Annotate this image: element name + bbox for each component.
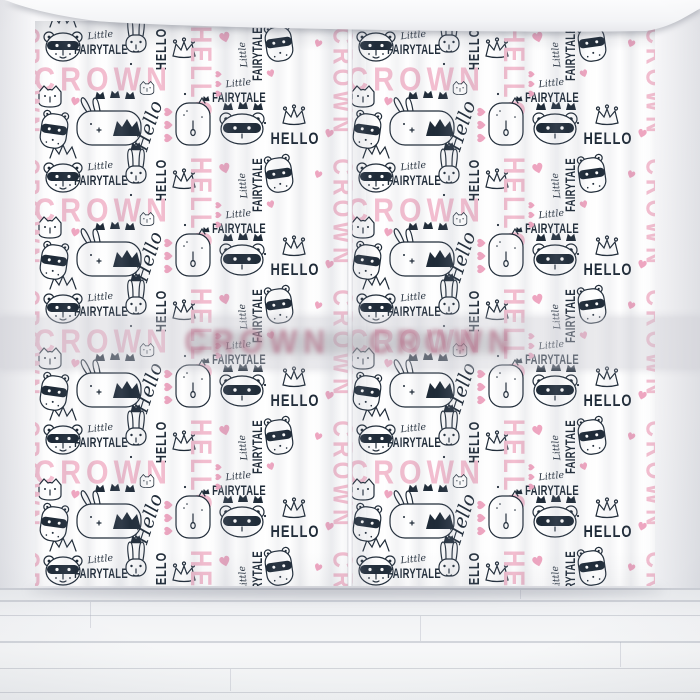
cornice-shape xyxy=(0,0,700,32)
floor-plank-line xyxy=(0,668,700,669)
watermark-ghost-text: CROWN xyxy=(184,324,331,361)
watermark-band: CROWN CROWN xyxy=(0,318,700,368)
floor-plank-seam xyxy=(90,602,91,628)
ceiling-cornice xyxy=(0,0,700,40)
floor-plank-seam xyxy=(230,669,231,691)
floor-plank-seam xyxy=(620,642,621,667)
curtain-panel-left xyxy=(35,21,348,586)
floor-plank-line xyxy=(0,600,700,602)
floor-plank-line xyxy=(0,615,700,616)
curtain-panel-right xyxy=(352,21,655,586)
wood-floor xyxy=(0,588,700,700)
curtain-product-photo: Little FAIRYTALE Little FAIRYTALE Little… xyxy=(0,0,700,700)
panel-gap xyxy=(347,21,353,586)
floor-plank-line xyxy=(0,641,700,643)
floor-plank-seam xyxy=(420,616,421,641)
watermark-ghost-text: CROWN xyxy=(369,324,516,361)
floor-plank-line xyxy=(0,692,700,693)
